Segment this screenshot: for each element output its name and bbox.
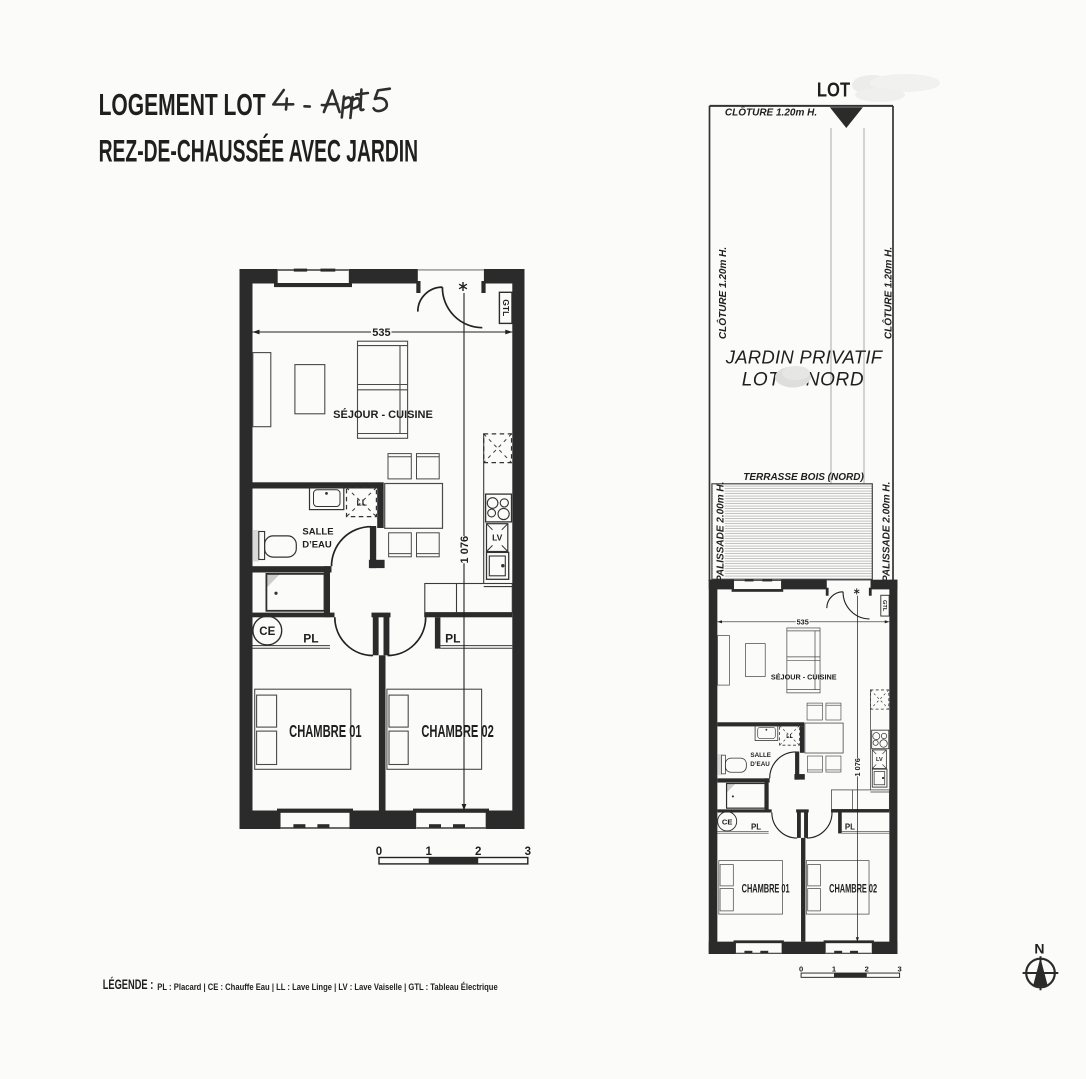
svg-text:CLÔTURE 1.20m H.: CLÔTURE 1.20m H. bbox=[882, 247, 895, 339]
svg-text:REZ-DE-CHAUSSÉE AVEC JARDIN: REZ-DE-CHAUSSÉE AVEC JARDIN bbox=[99, 132, 419, 168]
svg-text:LOGEMENT LOT: LOGEMENT LOT bbox=[99, 87, 266, 122]
svg-text:PALISSADE 2.00m H.: PALISSADE 2.00m H. bbox=[882, 482, 893, 582]
svg-text:PALISSADE 2.00m H.: PALISSADE 2.00m H. bbox=[716, 482, 727, 582]
svg-text:LÉGENDE :: LÉGENDE : bbox=[103, 976, 154, 992]
svg-text:LOT: LOT bbox=[817, 79, 851, 102]
svg-text:JARDIN PRIVATIF: JARDIN PRIVATIF bbox=[725, 347, 884, 368]
svg-text:N: N bbox=[1034, 941, 1044, 957]
svg-text:CLÔTURE 1.20m H.: CLÔTURE 1.20m H. bbox=[716, 247, 729, 339]
svg-text:LOT: LOT bbox=[742, 370, 782, 391]
svg-text:CLÔTURE 1.20m H.: CLÔTURE 1.20m H. bbox=[725, 106, 817, 119]
svg-text:TERRASSE BOIS (NORD): TERRASSE BOIS (NORD) bbox=[743, 472, 864, 483]
svg-text:PL : Placard | CE : Chauffe Ea: PL : Placard | CE : Chauffe Eau | LL : L… bbox=[157, 982, 497, 992]
svg-text:NORD: NORD bbox=[806, 370, 864, 391]
